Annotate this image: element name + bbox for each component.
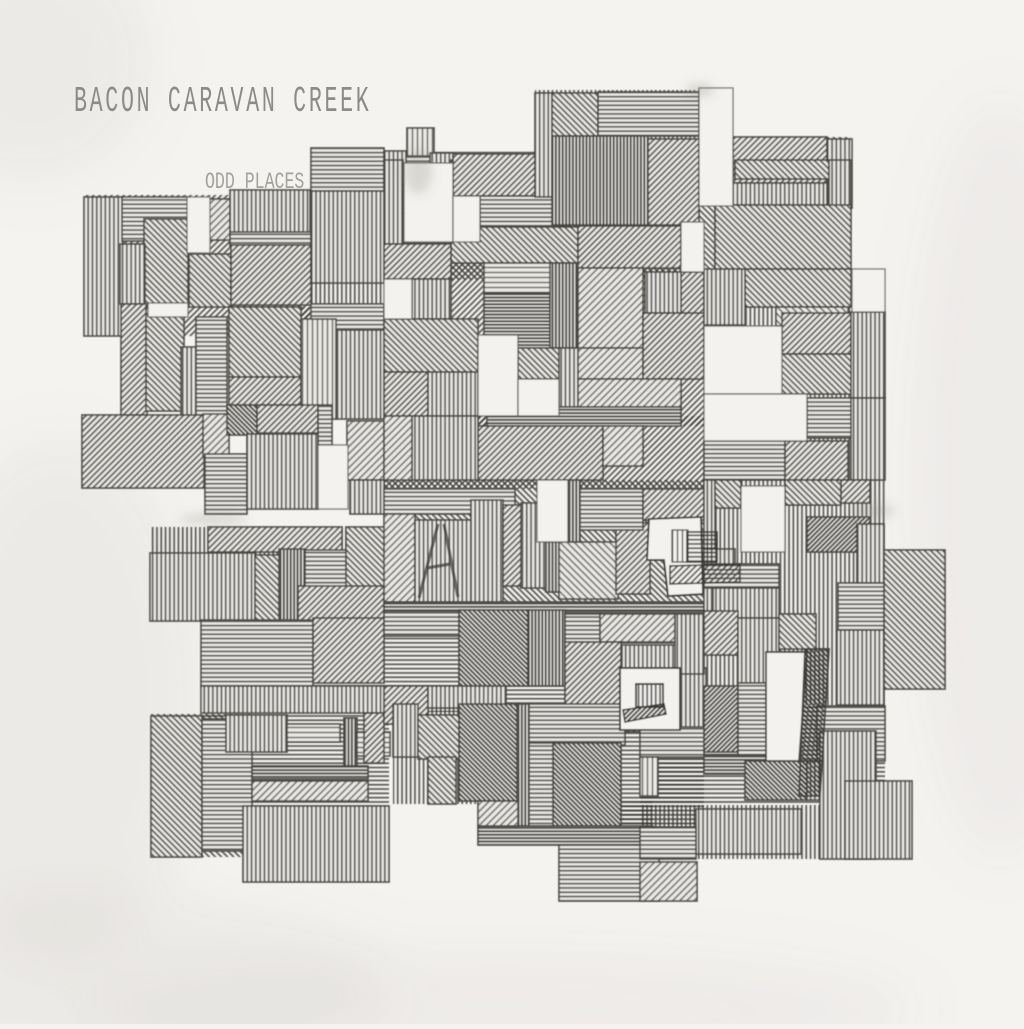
svg-text:ODD PLACES: ODD PLACES xyxy=(205,170,304,196)
svg-text:BACON CARAVAN CREEK: BACON CARAVAN CREEK xyxy=(74,81,371,122)
